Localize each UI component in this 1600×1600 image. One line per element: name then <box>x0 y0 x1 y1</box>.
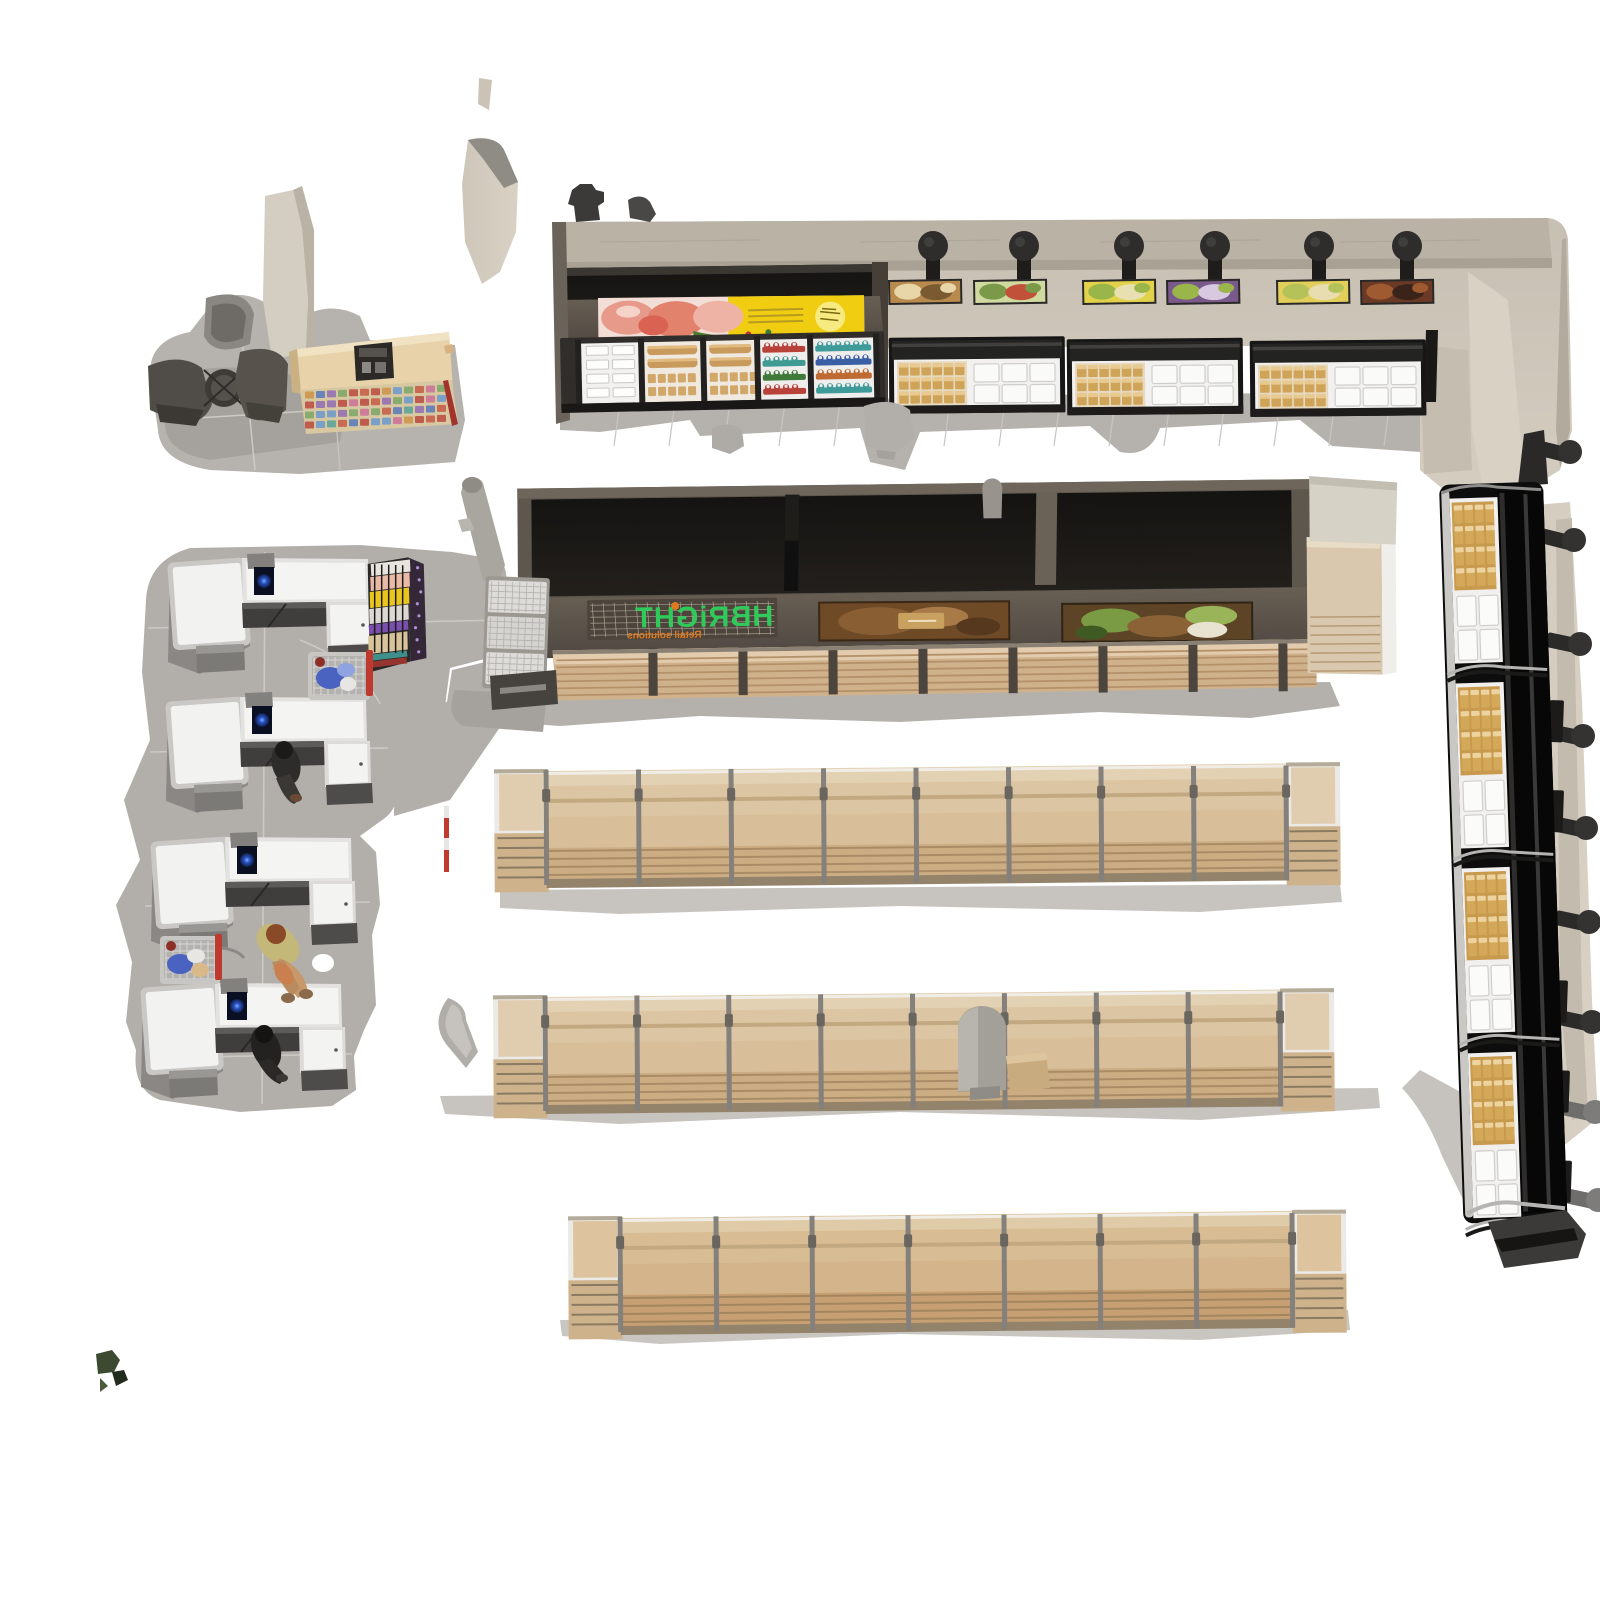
svg-text:Retail solutions: Retail solutions <box>627 630 702 642</box>
